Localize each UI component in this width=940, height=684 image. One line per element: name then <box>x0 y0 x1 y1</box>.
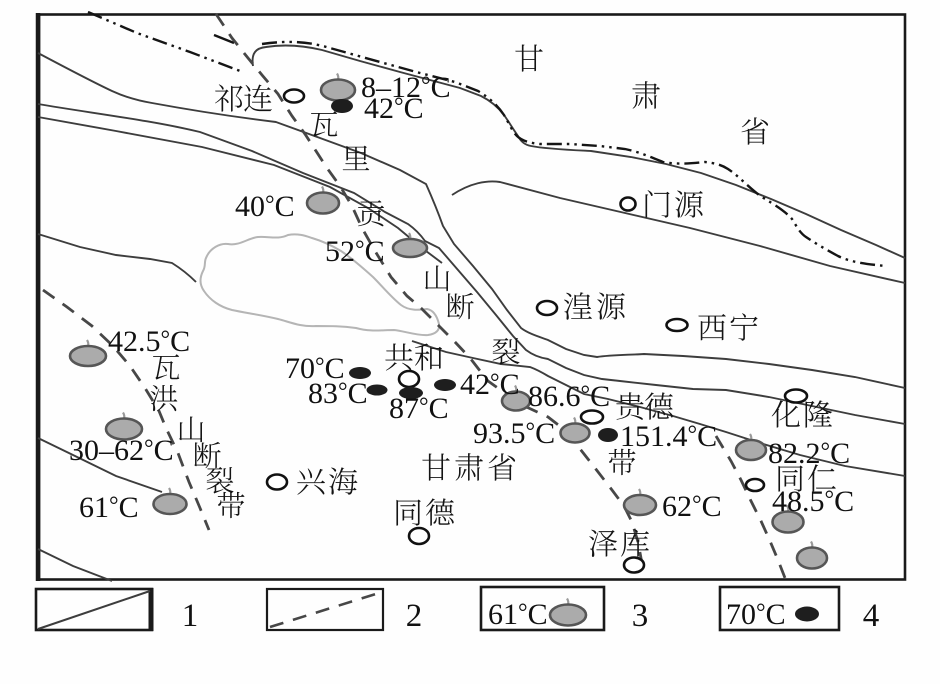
svg-text:42°C: 42°C <box>460 368 520 401</box>
svg-text:1: 1 <box>182 598 199 634</box>
svg-text:82.2°C: 82.2°C <box>768 437 850 470</box>
svg-text:61°C: 61°C <box>79 491 139 524</box>
svg-text:30–62°C: 30–62°C <box>69 434 174 467</box>
svg-text:48.5°C: 48.5°C <box>772 485 854 518</box>
svg-text:40°C: 40°C <box>235 190 295 223</box>
svg-text:2: 2 <box>406 598 423 634</box>
svg-text:62°C: 62°C <box>662 490 722 523</box>
svg-text:61°C: 61°C <box>488 598 548 631</box>
svg-text:86.6°C: 86.6°C <box>528 380 610 413</box>
svg-text:83°C: 83°C <box>308 377 368 410</box>
svg-text:3: 3 <box>632 598 649 634</box>
svg-text:42°C: 42°C <box>364 92 424 125</box>
svg-text:70°C: 70°C <box>726 598 786 631</box>
svg-text:151.4°C: 151.4°C <box>620 420 717 453</box>
svg-text:4: 4 <box>863 598 880 634</box>
svg-text:93.5°C: 93.5°C <box>473 417 555 450</box>
svg-text:42.5°C: 42.5°C <box>108 325 190 358</box>
svg-text:87°C: 87°C <box>389 392 449 425</box>
svg-text:52°C: 52°C <box>325 235 385 268</box>
